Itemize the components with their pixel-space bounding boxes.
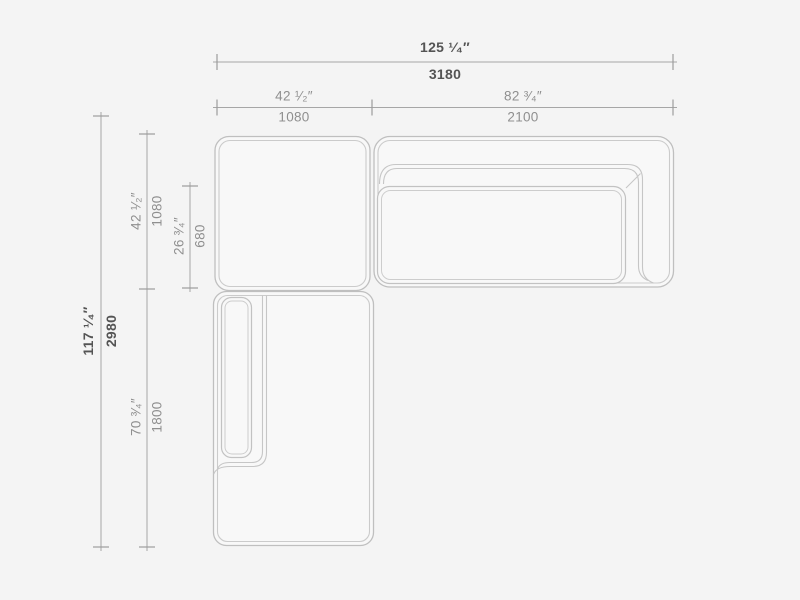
dim-right-module-width-inches: 82 ³⁄₄″ [504, 89, 542, 103]
sofa-module [374, 137, 674, 288]
sofa-seat-cushion-outline [378, 187, 626, 284]
dim-top-module-height-mm: 1080 [150, 195, 164, 226]
corner-module-outline [215, 137, 370, 291]
dim-chaise-height-mm: 1800 [150, 401, 164, 432]
dim-left-module-width-inches: 42 ¹⁄₂″ [275, 89, 313, 103]
dim-total-width-inches: 125 ¹⁄₄″ [420, 40, 470, 54]
dimension-lines [93, 54, 677, 551]
chaise-module [214, 292, 374, 546]
dim-right-module-width-mm: 2100 [507, 110, 538, 124]
dim-total-width-mm: 3180 [429, 67, 461, 81]
dim-chaise-height-inches: 70 ³⁄₄″ [129, 398, 143, 436]
corner-module [215, 137, 370, 291]
dim-top-module-height-inches: 42 ¹⁄₂″ [129, 192, 143, 230]
dim-total-height-inches: 117 ¹⁄₄″ [81, 306, 95, 355]
dim-left-module-width-mm: 1080 [278, 110, 309, 124]
dim-total-height-mm: 2980 [104, 315, 118, 347]
dim-seat-depth-mm: 680 [193, 224, 207, 247]
sofa-dimension-diagram: 125 ¹⁄₄″ 3180 42 ¹⁄₂″ 1080 82 ³⁄₄″ 2100 … [0, 0, 800, 600]
chaise-armrest-cushion-outline [222, 298, 252, 458]
sofa-top-view-drawing [0, 0, 800, 600]
dim-seat-depth-inches: 26 ³⁄₄″ [172, 217, 186, 255]
